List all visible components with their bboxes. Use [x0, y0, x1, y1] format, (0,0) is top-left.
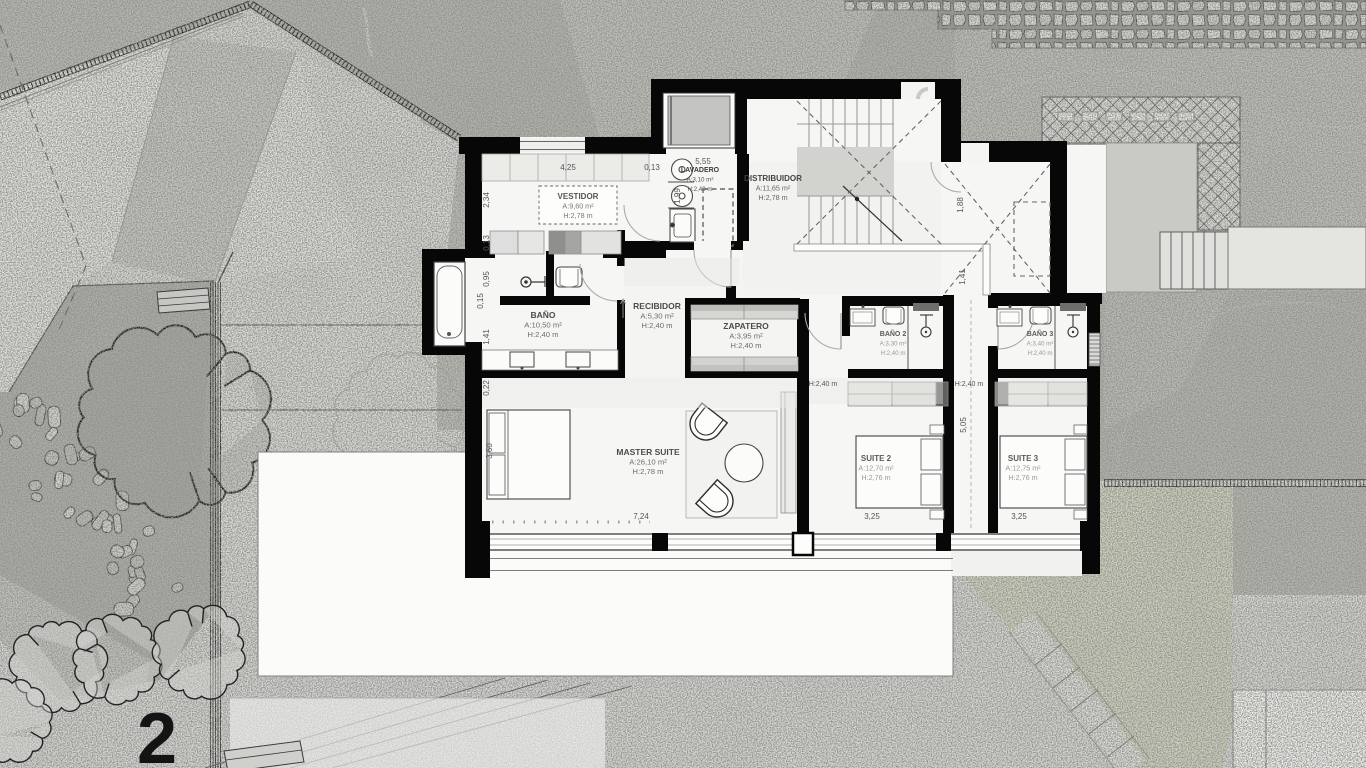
- svg-text:H:2,40 m: H:2,40 m: [641, 321, 672, 330]
- svg-text:H:2,40 m: H:2,40 m: [687, 186, 712, 193]
- svg-text:0,13: 0,13: [644, 163, 660, 172]
- svg-text:4,25: 4,25: [560, 163, 576, 172]
- svg-text:H:2,40 m: H:2,40 m: [955, 381, 984, 388]
- svg-text:3,25: 3,25: [1011, 512, 1027, 521]
- svg-text:2,34: 2,34: [482, 192, 491, 208]
- svg-text:H:2,76 m: H:2,76 m: [861, 473, 890, 482]
- svg-text:H:2,40 m: H:2,40 m: [809, 381, 838, 388]
- svg-text:H:2,40 m: H:2,40 m: [527, 330, 558, 339]
- svg-text:SUITE 2: SUITE 2: [861, 454, 892, 463]
- svg-text:A:3,30 m²: A:3,30 m²: [880, 341, 907, 348]
- svg-text:H:2,78 m: H:2,78 m: [563, 211, 592, 220]
- svg-text:LAVADERO: LAVADERO: [681, 167, 720, 174]
- svg-text:H:2,76 m: H:2,76 m: [1008, 473, 1037, 482]
- svg-text:VESTIDOR: VESTIDOR: [558, 192, 599, 201]
- svg-text:A:26,10 m²: A:26,10 m²: [629, 458, 667, 467]
- svg-text:0,95: 0,95: [482, 271, 491, 287]
- svg-text:BAÑO: BAÑO: [530, 310, 555, 320]
- svg-text:A:5,30 m²: A:5,30 m²: [640, 312, 674, 321]
- svg-text:7,24: 7,24: [633, 512, 649, 521]
- svg-text:1,99: 1,99: [673, 188, 682, 204]
- svg-text:3,60: 3,60: [485, 443, 494, 459]
- svg-text:1,41: 1,41: [482, 329, 491, 345]
- svg-text:5,55: 5,55: [695, 157, 711, 166]
- svg-text:SUITE 3: SUITE 3: [1008, 454, 1039, 463]
- svg-text:0,15: 0,15: [476, 293, 485, 309]
- svg-text:ZAPATERO: ZAPATERO: [723, 321, 769, 331]
- svg-text:A:10,50 m²: A:10,50 m²: [524, 321, 562, 330]
- svg-text:A:9,60 m²: A:9,60 m²: [562, 202, 594, 211]
- svg-text:A:11,65 m²: A:11,65 m²: [756, 184, 791, 193]
- svg-text:RECIBIDOR: RECIBIDOR: [633, 301, 681, 311]
- svg-text:DISTRIBUIDOR: DISTRIBUIDOR: [744, 174, 802, 183]
- svg-text:1,88: 1,88: [956, 197, 965, 213]
- svg-text:0,13: 0,13: [482, 235, 491, 251]
- svg-text:A:3,95 m²: A:3,95 m²: [729, 332, 763, 341]
- svg-text:3,25: 3,25: [864, 512, 880, 521]
- svg-text:BAÑO 2: BAÑO 2: [880, 329, 907, 338]
- svg-text:A:3,40 m²: A:3,40 m²: [1027, 341, 1054, 348]
- svg-text:A:12,75 m²: A:12,75 m²: [1005, 464, 1041, 473]
- svg-text:H:2,40 m: H:2,40 m: [730, 341, 761, 350]
- svg-text:A:12,70 m²: A:12,70 m²: [858, 464, 894, 473]
- svg-text:BAÑO 3: BAÑO 3: [1027, 329, 1054, 338]
- svg-text:0,22: 0,22: [482, 380, 491, 396]
- svg-text:1,41: 1,41: [958, 269, 967, 285]
- svg-text:5,05: 5,05: [959, 417, 968, 433]
- svg-text:2: 2: [137, 699, 177, 768]
- svg-text:H:2,40 m: H:2,40 m: [1027, 350, 1052, 357]
- svg-text:H:2,78 m: H:2,78 m: [758, 193, 787, 202]
- svg-text:A:3,10 m²: A:3,10 m²: [687, 177, 714, 184]
- svg-text:MASTER SUITE: MASTER SUITE: [616, 447, 680, 457]
- svg-text:H:2,40 m: H:2,40 m: [880, 350, 905, 357]
- svg-text:H:2,78 m: H:2,78 m: [632, 467, 663, 476]
